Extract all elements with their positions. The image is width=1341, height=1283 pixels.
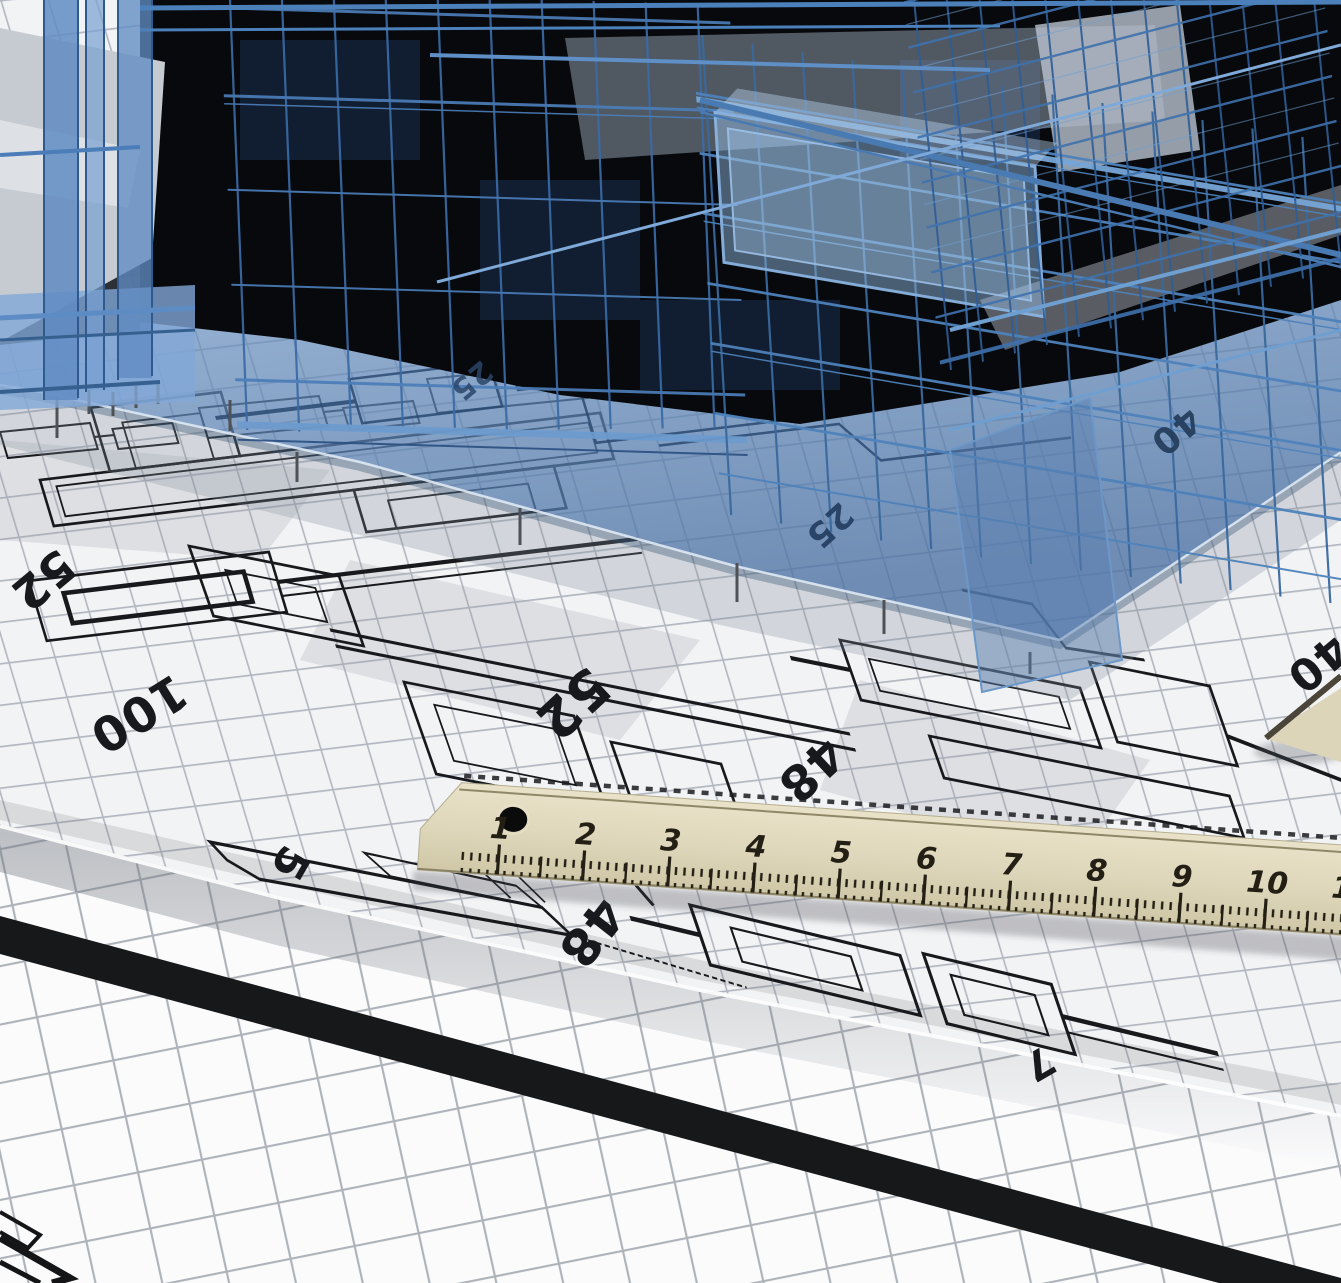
ruler-number-8: 8 <box>1085 853 1108 889</box>
ruler-number-10: 10 <box>1245 864 1289 902</box>
ruler-number-2: 2 <box>574 817 597 853</box>
ruler-number-4: 4 <box>743 829 767 865</box>
ruler-number-6: 6 <box>915 841 938 877</box>
ruler-number-1: 1 <box>489 811 512 847</box>
glass-wall-right <box>950 398 1122 692</box>
ruler-number-3: 3 <box>659 823 682 859</box>
ruler-number-9: 9 <box>1170 859 1193 895</box>
scene: 52 100 52 48 40 25 25 5 48 7 40 <box>0 0 1341 1283</box>
ruler-number-11: 11 <box>1330 870 1341 908</box>
ruler-number-5: 5 <box>830 835 853 871</box>
architecture-blueprint-photo: 52 100 52 48 40 25 25 5 48 7 40 <box>0 0 1341 1283</box>
ruler-number-7: 7 <box>1000 847 1023 883</box>
